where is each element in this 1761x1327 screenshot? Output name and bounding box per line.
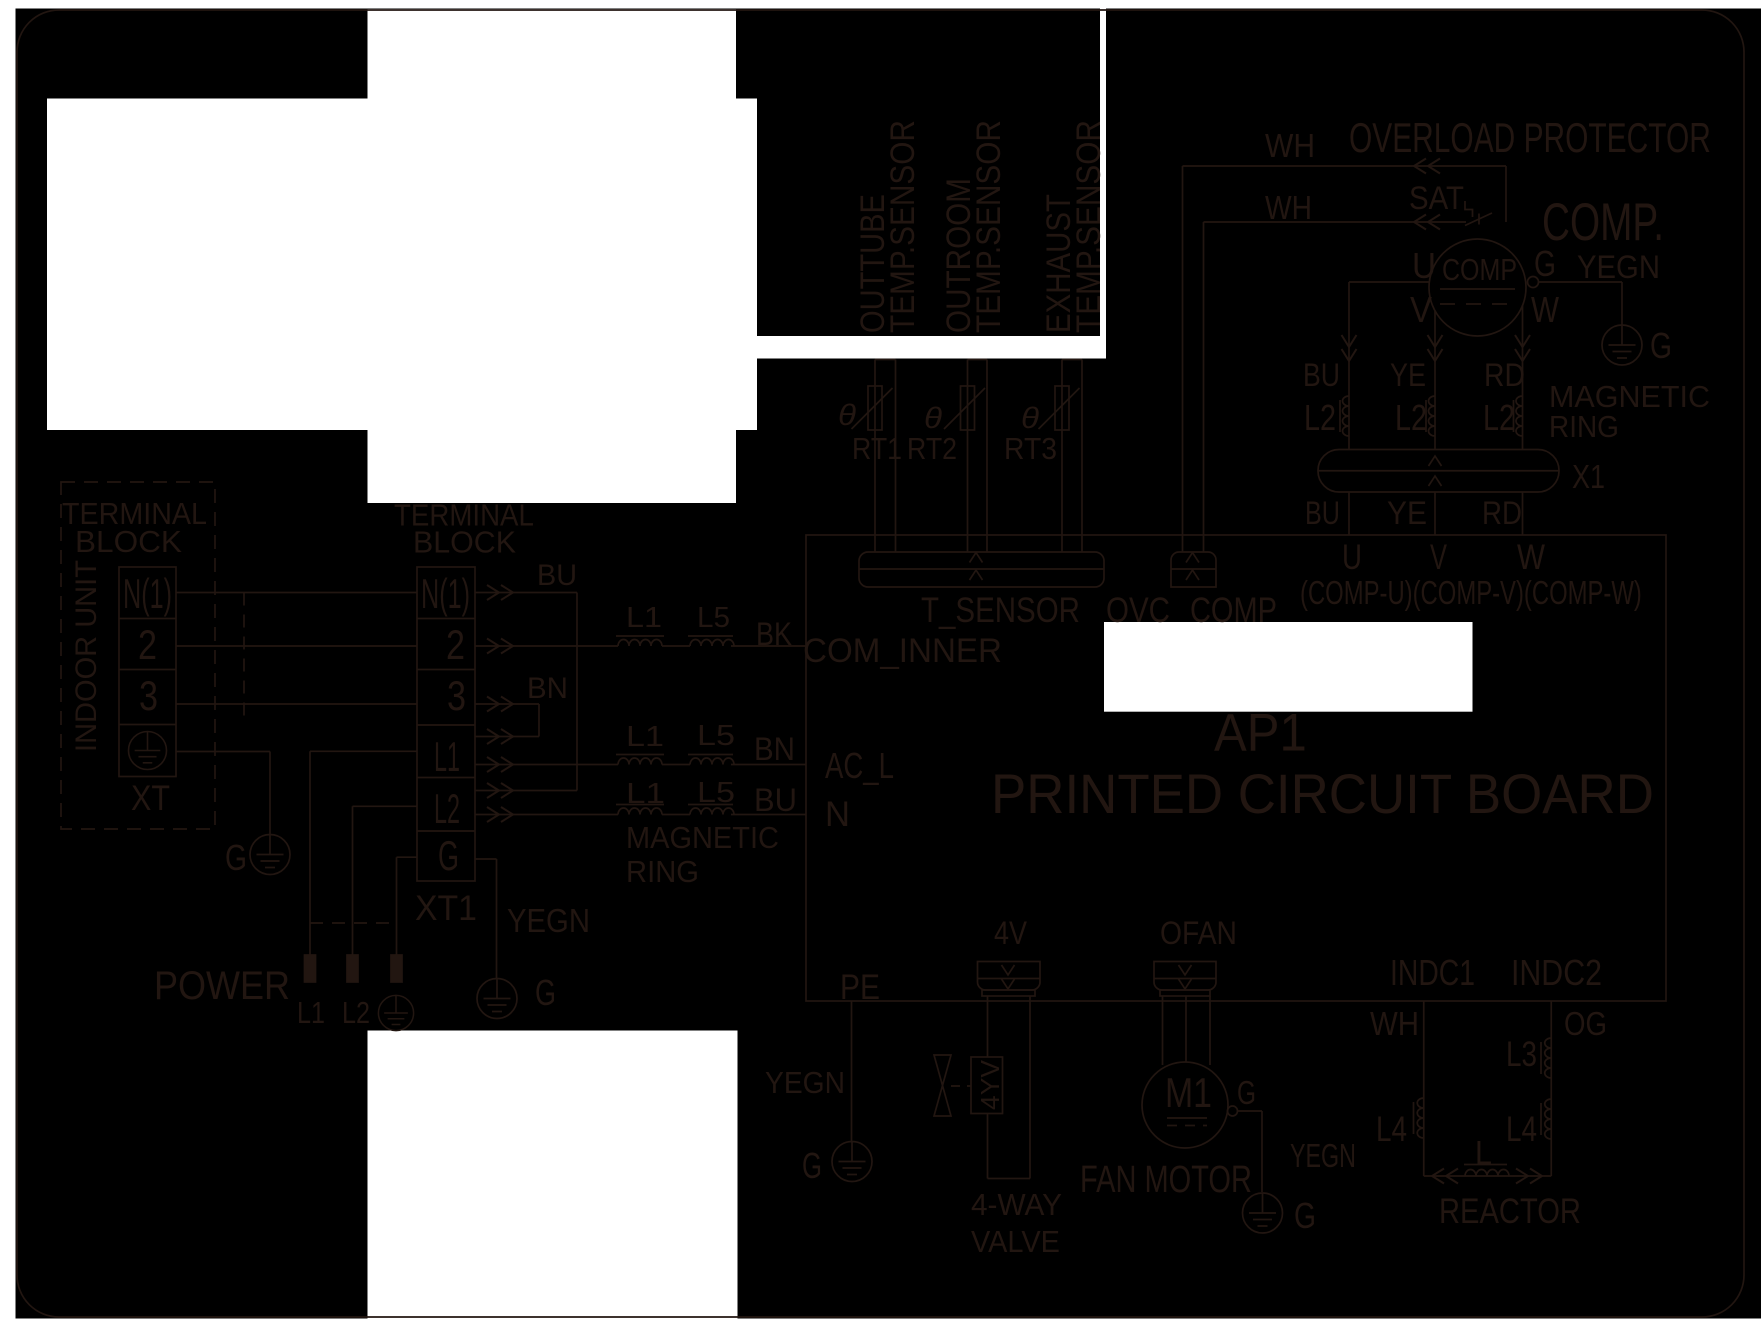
svg-text:G: G — [1294, 1196, 1316, 1236]
svg-text:TEMP.SENSOR: TEMP.SENSOR — [1069, 120, 1107, 333]
svg-text:2: 2 — [446, 622, 465, 669]
svg-text:4-WAY: 4-WAY — [971, 1187, 1062, 1222]
svg-text:BU: BU — [1305, 496, 1340, 532]
svg-text:BU: BU — [1303, 358, 1340, 394]
svg-text:REACTOR: REACTOR — [1439, 1191, 1581, 1230]
svg-text:4V: 4V — [994, 916, 1027, 952]
svg-text:YE: YE — [1387, 495, 1427, 531]
svg-text:COM_INNER: COM_INNER — [803, 633, 1002, 670]
svg-text:AC_L: AC_L — [825, 745, 894, 785]
svg-text:V: V — [1410, 291, 1432, 331]
svg-text:WH: WH — [1265, 127, 1315, 165]
svg-text:PRINTED CIRCUIT BOARD: PRINTED CIRCUIT BOARD — [991, 763, 1654, 826]
svg-text:L1: L1 — [626, 719, 664, 752]
svg-text:T_SENSOR: T_SENSOR — [921, 591, 1080, 630]
svg-text:L4: L4 — [1506, 1109, 1537, 1149]
svg-text:OG: OG — [1564, 1006, 1607, 1043]
svg-text:OFAN: OFAN — [1160, 916, 1237, 951]
svg-text:G: G — [802, 1146, 822, 1186]
svg-text:G: G — [535, 972, 556, 1013]
svg-text:U: U — [1342, 537, 1362, 577]
svg-text:U: U — [1412, 247, 1436, 286]
svg-text:YEGN: YEGN — [507, 902, 590, 939]
svg-text:G: G — [1534, 244, 1556, 284]
svg-text:PE: PE — [840, 968, 880, 1007]
svg-text:BU: BU — [754, 783, 797, 819]
svg-text:L5: L5 — [697, 718, 735, 751]
svg-text:G: G — [1650, 326, 1672, 366]
svg-text:POWER: POWER — [154, 964, 290, 1008]
svg-text:BU: BU — [537, 558, 577, 592]
svg-text:WH: WH — [1370, 1005, 1419, 1042]
svg-text:COMP: COMP — [1442, 252, 1517, 286]
svg-text:RT2: RT2 — [907, 432, 957, 466]
svg-text:4YV: 4YV — [975, 1060, 1005, 1110]
svg-text:W: W — [1517, 538, 1545, 577]
svg-text:INDC1: INDC1 — [1390, 953, 1475, 993]
svg-text:YEGN: YEGN — [1577, 250, 1660, 285]
svg-text:L4: L4 — [1376, 1109, 1407, 1149]
svg-text:XT1: XT1 — [415, 889, 477, 928]
svg-text:RD: RD — [1484, 358, 1525, 393]
svg-text:W: W — [1531, 289, 1559, 329]
svg-text:OVC: OVC — [1106, 591, 1170, 630]
svg-text:N(1): N(1) — [421, 572, 470, 618]
svg-text:INDC2: INDC2 — [1511, 954, 1602, 994]
svg-text:YE: YE — [1390, 358, 1426, 394]
svg-text:L2: L2 — [1395, 398, 1427, 438]
svg-text:RD: RD — [1482, 496, 1522, 531]
svg-text:G: G — [225, 838, 247, 878]
svg-text:COMP: COMP — [1190, 590, 1277, 629]
svg-text:AP1: AP1 — [1214, 703, 1307, 762]
svg-text:L1: L1 — [434, 734, 460, 781]
svg-text:VALVE: VALVE — [971, 1225, 1060, 1259]
svg-text:WH: WH — [1265, 189, 1312, 227]
svg-text:MAGNETIC: MAGNETIC — [626, 821, 779, 855]
svg-text:BN: BN — [527, 672, 568, 705]
svg-text:TEMP.SENSOR: TEMP.SENSOR — [883, 120, 921, 333]
svg-text:BLOCK: BLOCK — [413, 524, 517, 559]
svg-text:M1: M1 — [1165, 1070, 1212, 1117]
svg-text:BK: BK — [756, 617, 792, 653]
svg-text:RT1: RT1 — [852, 432, 902, 466]
svg-text:RING: RING — [1549, 410, 1619, 445]
svg-text:L2: L2 — [342, 994, 370, 1029]
svg-text:TEMP.SENSOR: TEMP.SENSOR — [969, 120, 1007, 333]
svg-text:X1: X1 — [1572, 460, 1605, 496]
svg-text:G: G — [1237, 1076, 1256, 1112]
svg-text:3: 3 — [139, 673, 158, 720]
svg-text:FAN MOTOR: FAN MOTOR — [1080, 1158, 1252, 1201]
svg-text:V: V — [1430, 538, 1447, 577]
svg-text:L2: L2 — [1483, 398, 1515, 438]
svg-text:L1: L1 — [626, 777, 665, 809]
svg-text:COMP.: COMP. — [1542, 192, 1664, 251]
svg-text:θ: θ — [924, 400, 942, 434]
svg-text:L2: L2 — [1304, 398, 1336, 438]
svg-text:SAT: SAT — [1409, 180, 1464, 216]
svg-text:L3: L3 — [1506, 1034, 1537, 1074]
svg-text:θ: θ — [838, 397, 856, 431]
svg-text:RT3: RT3 — [1004, 432, 1057, 466]
svg-text:BN: BN — [754, 731, 795, 767]
svg-text:N(1): N(1) — [123, 572, 172, 618]
svg-text:L1: L1 — [297, 994, 325, 1029]
svg-text:L2: L2 — [434, 786, 460, 833]
svg-text:INDOOR UNIT: INDOOR UNIT — [70, 560, 104, 752]
svg-text:G: G — [438, 833, 459, 879]
svg-text:θ: θ — [1021, 400, 1039, 434]
svg-text:3: 3 — [447, 673, 466, 720]
svg-text:L5: L5 — [697, 601, 730, 634]
svg-text:(COMP-U)(COMP-V)(COMP-W): (COMP-U)(COMP-V)(COMP-W) — [1300, 575, 1642, 612]
svg-text:BLOCK: BLOCK — [75, 524, 182, 559]
svg-text:L1: L1 — [626, 601, 662, 634]
svg-text:2: 2 — [138, 622, 157, 669]
svg-text:YEGN: YEGN — [1290, 1138, 1356, 1175]
svg-text:RING: RING — [626, 855, 699, 889]
svg-text:N: N — [825, 795, 850, 834]
svg-text:OVERLOAD PROTECTOR: OVERLOAD PROTECTOR — [1349, 114, 1711, 161]
svg-text:L5: L5 — [697, 775, 735, 808]
svg-text:XT: XT — [131, 778, 170, 817]
svg-text:YEGN: YEGN — [765, 1066, 845, 1101]
svg-text:L: L — [1475, 1134, 1492, 1171]
